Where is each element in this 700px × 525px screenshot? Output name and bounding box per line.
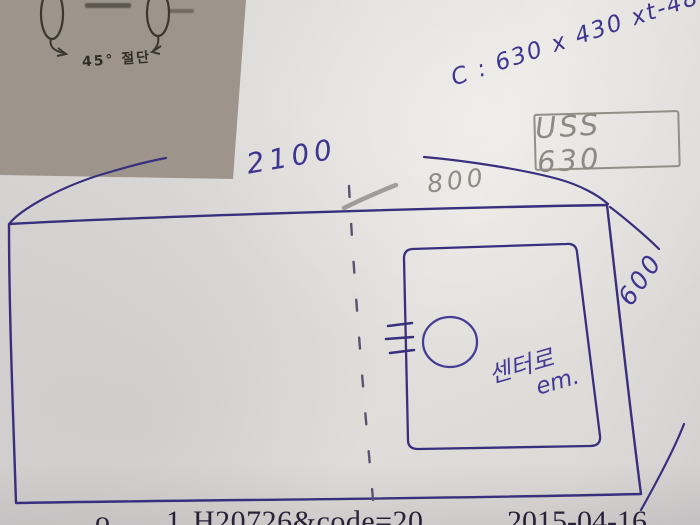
leader-top-right (610, 207, 659, 249)
inner-rectangle-outline (404, 244, 600, 449)
footer-fragment: o (95, 505, 110, 525)
footer-fragment: 1. (166, 505, 189, 525)
material-label: USS 630 (534, 102, 680, 179)
footer-date: 2015-04-16 (507, 505, 647, 525)
material-box: USS 630 (533, 110, 680, 171)
photo-canvas: 45° 절단 C : 630 x 430 xt-48 USS 630 2100 … (0, 0, 700, 525)
footer-code: H20726&code=20 (193, 505, 424, 525)
tick-marks (386, 323, 414, 353)
dim-arc-left (9, 158, 166, 224)
center-dashed-line (349, 186, 374, 510)
leader-bottom-right (641, 424, 684, 510)
hole-circle (423, 317, 477, 367)
main-sketch-svg (0, 0, 700, 525)
dim-600-label: 600 (618, 254, 688, 324)
footer-print-line: o 1. H20726&code=20 2015-04-16 (0, 505, 700, 525)
pencil-smudge (344, 185, 396, 208)
